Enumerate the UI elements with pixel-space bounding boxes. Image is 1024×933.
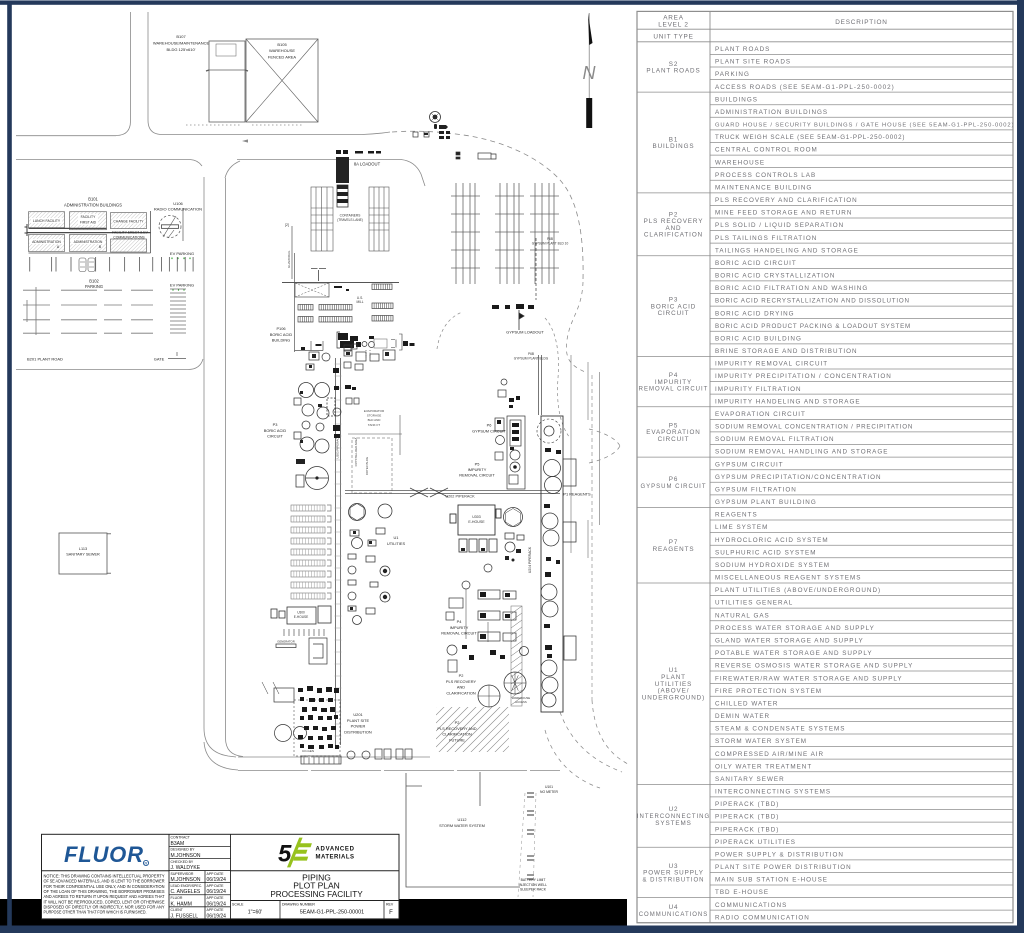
svg-text:BUILDINGS: BUILDINGS — [652, 143, 694, 150]
svg-text:ACCESS ROADS (SEE 5EAM-G1-PPL-: ACCESS ROADS (SEE 5EAM-G1-PPL-250-0002) — [715, 84, 895, 91]
svg-text:REV: REV — [386, 903, 394, 907]
svg-text:FACILITY: FACILITY — [81, 215, 96, 219]
svg-text:B101: B101 — [88, 197, 98, 202]
svg-text:L113: L113 — [79, 547, 87, 551]
svg-text:P4: P4 — [457, 619, 463, 624]
svg-text:POWER SUPPLY & DISTRIBUTION: POWER SUPPLY & DISTRIBUTION — [715, 851, 844, 858]
svg-text:BRINE STORAGE AND DISTRIBUTION: BRINE STORAGE AND DISTRIBUTION — [715, 348, 858, 355]
svg-text:SODIUM REMOVAL CONCENTRATION /: SODIUM REMOVAL CONCENTRATION / PRECIPITA… — [715, 424, 913, 431]
svg-text:& DISTRIBUTION: & DISTRIBUTION — [642, 877, 704, 883]
svg-text:WAREHOUSE/MAINTENANCE: WAREHOUSE/MAINTENANCE — [153, 40, 210, 45]
svg-text:B102: B102 — [89, 279, 99, 284]
svg-text:GYPSUM CIRCUIT: GYPSUM CIRCUIT — [472, 428, 506, 433]
svg-text:E-HOUSE: E-HOUSE — [468, 520, 485, 524]
svg-text:AREA: AREA — [663, 15, 684, 22]
svg-text:SUPERVISOR: SUPERVISOR — [171, 872, 194, 876]
svg-text:PIPERACK UTILITIES: PIPERACK UTILITIES — [715, 839, 796, 846]
svg-text:IMPURITY: IMPURITY — [468, 467, 487, 472]
svg-text:CHILLED WATER: CHILLED WATER — [715, 700, 778, 707]
svg-text:N: N — [583, 63, 597, 83]
svg-text:PIPERACK (TBD): PIPERACK (TBD) — [715, 801, 779, 808]
svg-text:INJECTION WELL: INJECTION WELL — [519, 883, 547, 887]
svg-text:BORIC ACID: BORIC ACID — [264, 428, 287, 433]
svg-text:CLIENT: CLIENT — [171, 908, 184, 912]
svg-text:IMPURITY FILTRATION: IMPURITY FILTRATION — [715, 386, 802, 393]
svg-text:FLUOR: FLUOR — [171, 896, 183, 900]
svg-text:U300: U300 — [297, 611, 305, 615]
svg-text:PLANT ROADS: PLANT ROADS — [646, 68, 700, 75]
svg-text:FIRE PROTECTION SYSTEM: FIRE PROTECTION SYSTEM — [715, 688, 822, 695]
svg-text:U1: U1 — [394, 535, 399, 540]
svg-text:CIRCUIT: CIRCUIT — [658, 310, 690, 317]
svg-text:MATERIALS: MATERIALS — [316, 855, 355, 861]
svg-text:EV PARKING: EV PARKING — [170, 283, 194, 288]
svg-text:PARKING: PARKING — [715, 71, 750, 78]
svg-text:STEAM & CONDENSATE SYSTEMS: STEAM & CONDENSATE SYSTEMS — [715, 726, 846, 733]
svg-text:PLS RECOVERY AND CLARIFICATION: PLS RECOVERY AND CLARIFICATION — [715, 197, 858, 204]
svg-text:FENCED AREA: FENCED AREA — [268, 54, 297, 59]
svg-text:U202 PIPERACK: U202 PIPERACK — [445, 495, 475, 499]
svg-text:FIRST AID: FIRST AID — [80, 221, 97, 225]
svg-text:NATURAL GAS: NATURAL GAS — [715, 612, 770, 619]
svg-text:IMPURITY: IMPURITY — [450, 625, 469, 630]
svg-text:BUILDING: BUILDING — [272, 338, 290, 343]
svg-text:AND: AND — [457, 685, 465, 690]
svg-text:P2: P2 — [455, 720, 460, 725]
svg-text:P3: P3 — [273, 422, 278, 427]
svg-text:P6B: P6B — [528, 352, 534, 356]
svg-text:COMMUNICATIONS: COMMUNICATIONS — [113, 236, 145, 240]
svg-text:8A LOADOUT: 8A LOADOUT — [354, 162, 381, 167]
svg-text:BORIC ACID BUILDING: BORIC ACID BUILDING — [715, 335, 802, 342]
svg-text:DESIGNED BY: DESIGNED BY — [171, 848, 196, 852]
svg-text:BATTERY LIMIT: BATTERY LIMIT — [521, 878, 546, 882]
svg-text:SULPHURIC ACID SYSTEM: SULPHURIC ACID SYSTEM — [715, 549, 816, 556]
svg-text:FUTURE: FUTURE — [449, 737, 465, 742]
svg-text:SODIUM HYDROXIDE SYSTEM: SODIUM HYDROXIDE SYSTEM — [715, 562, 830, 569]
svg-text:DRAWING NUMBER: DRAWING NUMBER — [282, 903, 315, 907]
svg-text:P5: P5 — [475, 462, 480, 467]
svg-text:PROCESS WATER STORAGE AND SUPP: PROCESS WATER STORAGE AND SUPPLY — [715, 625, 875, 632]
svg-text:U303: U303 — [472, 515, 481, 519]
svg-text:BORIC ACID PRODUCT PACKING & L: BORIC ACID PRODUCT PACKING & LOADOUT SYS… — [715, 323, 911, 330]
svg-text:WAREHOUSE: WAREHOUSE — [269, 48, 295, 53]
svg-text:BORIC ACID RECRYSTALLIZATION A: BORIC ACID RECRYSTALLIZATION AND DISSOLU… — [715, 298, 910, 305]
svg-text:SODIUM REMOVAL HANDLING AND ST: SODIUM REMOVAL HANDLING AND STORAGE — [715, 449, 888, 456]
svg-text:FACILITY ERECT & EV: FACILITY ERECT & EV — [112, 231, 148, 235]
svg-text:B201 PLANT ROAD: B201 PLANT ROAD — [27, 357, 63, 362]
svg-text:REMOVAL CIRCUIT: REMOVAL CIRCUIT — [441, 631, 477, 636]
svg-text:TBD E-HOUSE: TBD E-HOUSE — [715, 889, 769, 896]
svg-text:LEAD ENGR/SPEC.: LEAD ENGR/SPEC. — [171, 884, 203, 888]
svg-text:RADIO COMMUNICATION: RADIO COMMUNICATION — [154, 207, 202, 212]
svg-text:CLARIFICATION: CLARIFICATION — [446, 690, 476, 695]
svg-text:E-HOUSE: E-HOUSE — [294, 615, 309, 619]
svg-text:PLS TAILINGS FILTRATION: PLS TAILINGS FILTRATION — [715, 235, 817, 242]
svg-text:PLANT SITE: PLANT SITE — [347, 718, 370, 723]
svg-text:HYDROCLORIC ACID SYSTEM: HYDROCLORIC ACID SYSTEM — [715, 537, 829, 544]
svg-text:TAILINGS HANDELING AND STORAGE: TAILINGS HANDELING AND STORAGE — [715, 247, 859, 254]
svg-text:CLARIFICATION: CLARIFICATION — [644, 232, 703, 239]
svg-text:CHECKED BY: CHECKED BY — [171, 860, 194, 864]
svg-text:[2]: [2] — [285, 223, 289, 227]
svg-text:U204 PIPERACK: U204 PIPERACK — [528, 546, 532, 573]
svg-text:FIREWATER/RAW WATER STORAGE AN: FIREWATER/RAW WATER STORAGE AND SUPPLY — [715, 675, 903, 682]
svg-text:GYPSUM PLANT BLDG: GYPSUM PLANT BLDG — [514, 357, 549, 361]
svg-text:DESCRIPTION: DESCRIPTION — [835, 19, 887, 26]
svg-text:BORIC ACID CIRCUIT: BORIC ACID CIRCUIT — [715, 260, 797, 267]
svg-text:IMPURITY: IMPURITY — [655, 379, 692, 386]
svg-text:ADMINISTRATION BUILDINGS: ADMINISTRATION BUILDINGS — [715, 109, 828, 116]
svg-text:EVAPORATION CIRCUIT: EVAPORATION CIRCUIT — [715, 411, 806, 418]
svg-text:EVAPORATOR: EVAPORATOR — [364, 409, 385, 413]
svg-text:SANITARY SEWER: SANITARY SEWER — [66, 553, 100, 557]
svg-text:PLS RECOVERY AND: PLS RECOVERY AND — [437, 726, 476, 731]
svg-text:REMOVAL CIRCUIT: REMOVAL CIRCUIT — [639, 387, 709, 393]
svg-text:MILL: MILL — [356, 300, 363, 304]
svg-text:BUILDINGS: BUILDINGS — [715, 96, 758, 103]
svg-text:BORIC ACID: BORIC ACID — [270, 332, 293, 337]
svg-text:U203 PIPERACK: U203 PIPERACK — [336, 435, 340, 458]
svg-text:IMPURITY PRECIPITATION / CONCE: IMPURITY PRECIPITATION / CONCENTRATION — [715, 373, 892, 380]
svg-text:ADMINISTRATION BUILDINGS: ADMINISTRATION BUILDINGS — [64, 202, 122, 207]
svg-text:ADMINISTRATION: ADMINISTRATION — [32, 240, 61, 244]
svg-text:GUARDRAIL: GUARDRAIL — [287, 250, 291, 268]
svg-text:TRUCK WEIGH SCALE (SEE 5EAM-G1: TRUCK WEIGH SCALE (SEE 5EAM-G1-PPL-250-0… — [715, 134, 905, 141]
svg-text:UTILITIES: UTILITIES — [387, 541, 406, 546]
svg-text:CHANGE FACILITY: CHANGE FACILITY — [113, 220, 144, 224]
svg-text:GENERATOR: GENERATOR — [277, 640, 294, 644]
svg-text:COMMUNICATIONS: COMMUNICATIONS — [639, 912, 709, 918]
svg-text:INTERCONNECTING SYSTEMS: INTERCONNECTING SYSTEMS — [715, 789, 831, 796]
svg-text:B105: B105 — [277, 42, 287, 47]
svg-text:GYPSUM CIRCUIT: GYPSUM CIRCUIT — [715, 461, 784, 468]
svg-text:ADMINISTRATION: ADMINISTRATION — [74, 240, 103, 244]
svg-text:PLS SOLID / LIQUID SEPARATION: PLS SOLID / LIQUID SEPARATION — [715, 222, 844, 229]
svg-text:EV PARKING: EV PARKING — [170, 251, 194, 256]
svg-text:PARKING: PARKING — [85, 284, 103, 289]
svg-text:SANITARY SEWER: SANITARY SEWER — [715, 776, 785, 783]
svg-text:P6B: P6B — [547, 237, 553, 241]
svg-text:STORAGE: STORAGE — [367, 414, 382, 418]
svg-text:PROCESSING FACILITY: PROCESSING FACILITY — [270, 890, 363, 899]
svg-text:REAGENTS: REAGENTS — [715, 512, 758, 519]
svg-text:(TRAVELS LANE): (TRAVELS LANE) — [337, 218, 363, 222]
svg-text:APP DATE: APP DATE — [207, 872, 225, 876]
svg-text:APP DATE: APP DATE — [207, 908, 225, 912]
svg-text:P106: P106 — [276, 326, 285, 331]
svg-text:SCALE: SCALE — [232, 903, 244, 907]
svg-text:P2: P2 — [459, 673, 464, 678]
svg-text:DEMIN WATER: DEMIN WATER — [715, 713, 770, 720]
svg-text:PLANT SITE POWER DISTRIBUTION: PLANT SITE POWER DISTRIBUTION — [715, 864, 852, 871]
svg-text:ADVANCED: ADVANCED — [316, 846, 355, 852]
svg-text:UTILITIES GENERAL: UTILITIES GENERAL — [715, 600, 793, 607]
svg-text:PLS RECOVERY: PLS RECOVERY — [446, 679, 477, 684]
svg-text:UNIT TYPE: UNIT TYPE — [653, 34, 693, 41]
svg-text:LEVEL 2: LEVEL 2 — [658, 22, 689, 29]
svg-text:CLARIFICATION: CLARIFICATION — [442, 732, 472, 737]
svg-text:REVERSE OSMOSIS WATER STORAGE: REVERSE OSMOSIS WATER STORAGE AND SUPPLY — [715, 663, 913, 670]
svg-text:MINE FEED STORAGE AND RETURN: MINE FEED STORAGE AND RETURN — [715, 210, 852, 217]
svg-text:STORM WATER SYSTEM: STORM WATER SYSTEM — [715, 738, 807, 745]
svg-text:PLANT SITE ROADS: PLANT SITE ROADS — [715, 59, 791, 66]
svg-text:DISTRIBUTION: DISTRIBUTION — [344, 729, 372, 734]
svg-text:CO-GEN: CO-GEN — [302, 749, 314, 753]
svg-text:GYPSUM FILTRATION: GYPSUM FILTRATION — [715, 486, 797, 493]
svg-text:GLAND WATER STORAGE AND SUPPLY: GLAND WATER STORAGE AND SUPPLY — [715, 637, 864, 644]
svg-text:PIPERACK (TBD): PIPERACK (TBD) — [715, 826, 779, 833]
svg-text:BLD AND: BLD AND — [368, 418, 382, 422]
svg-text:CONTRACT: CONTRACT — [171, 836, 191, 840]
svg-text:UNDERGROUND): UNDERGROUND) — [642, 694, 705, 701]
svg-text:U201: U201 — [353, 712, 362, 717]
svg-text:IMPURITY REMOVAL CIRCUIT: IMPURITY REMOVAL CIRCUIT — [715, 361, 828, 368]
svg-text:06/19/24: 06/19/24 — [207, 913, 227, 919]
svg-text:BORIC ACID CRYSTALLIZATION: BORIC ACID CRYSTALLIZATION — [715, 273, 835, 280]
svg-text:REMOVAL CIRCUIT: REMOVAL CIRCUIT — [459, 473, 495, 478]
svg-text:POWER SUPPLY: POWER SUPPLY — [643, 870, 704, 877]
svg-text:U2: U2 — [669, 806, 679, 813]
svg-text:MISCELLANEOUS REAGENT SYSTEMS: MISCELLANEOUS REAGENT SYSTEMS — [715, 575, 861, 582]
svg-text:IMPURITY HANDELING AND STORAGE: IMPURITY HANDELING AND STORAGE — [715, 398, 861, 405]
svg-text:BORIC ACID FILTRATION AND WASH: BORIC ACID FILTRATION AND WASHING — [715, 285, 868, 292]
svg-text:APP DATE: APP DATE — [207, 896, 225, 900]
svg-text:POWER: POWER — [351, 724, 366, 729]
svg-text:GYPSUM CIRCUIT: GYPSUM CIRCUIT — [640, 484, 706, 490]
svg-text:APP DATE: APP DATE — [207, 884, 225, 888]
svg-text:WAREHOUSE: WAREHOUSE — [715, 159, 765, 166]
svg-text:RADIO COMMUNICATION: RADIO COMMUNICATION — [715, 914, 810, 921]
svg-text:U101: U101 — [545, 785, 553, 789]
svg-text:DRYER BLDG: DRYER BLDG — [365, 457, 369, 475]
svg-text:1"=60': 1"=60' — [248, 910, 263, 916]
svg-text:B107: B107 — [176, 34, 186, 39]
svg-text:PROCESS CONTROLS LAB: PROCESS CONTROLS LAB — [715, 172, 816, 179]
svg-text:BORIC ACID DRYING: BORIC ACID DRYING — [715, 310, 795, 317]
svg-text:CONTAINERS: CONTAINERS — [340, 214, 361, 218]
svg-text:U106: U106 — [173, 201, 183, 206]
svg-text:F: F — [389, 910, 393, 916]
svg-text:SYSTEMS: SYSTEMS — [655, 820, 691, 827]
svg-text:TANK FT: TANK FT — [368, 423, 380, 427]
svg-text:NO METER: NO METER — [540, 790, 558, 794]
svg-text:CENTRAL CONTROL ROOM: CENTRAL CONTROL ROOM — [715, 147, 818, 154]
svg-text:P1 REAGENTS: P1 REAGENTS — [563, 492, 591, 497]
svg-text:LIME SYSTEM: LIME SYSTEM — [715, 524, 768, 531]
svg-text:5EAM-G1-PPL-250-00001: 5EAM-G1-PPL-250-00001 — [300, 910, 365, 916]
svg-text:GUARD HOUSE / SECURITY BUILDIN: GUARD HOUSE / SECURITY BUILDINGS / GATE … — [715, 123, 1014, 129]
svg-text:LUNCH FACILITY: LUNCH FACILITY — [33, 219, 61, 223]
svg-text:P6: P6 — [487, 423, 492, 428]
svg-text:FLUOR: FLUOR — [64, 842, 144, 867]
svg-text:PURPOSE OTHER THAN THAT FOR WH: PURPOSE OTHER THAN THAT FOR WHICH IS FUR… — [44, 910, 147, 915]
svg-text:CRYSTALLIZER AREA: CRYSTALLIZER AREA — [354, 437, 358, 466]
svg-text:P6: P6 — [669, 476, 679, 483]
svg-text:GYPSUM PLANT BLD 10: GYPSUM PLANT BLD 10 — [532, 242, 569, 246]
svg-text:OILY WATER TREATMENT: OILY WATER TREATMENT — [715, 763, 812, 770]
svg-text:PLANT ROADS: PLANT ROADS — [715, 46, 770, 53]
svg-text:GYPSUM LOADOUT: GYPSUM LOADOUT — [506, 330, 544, 335]
svg-text:COMMUNICATIONS: COMMUNICATIONS — [715, 902, 787, 909]
svg-text:CIRCUIT: CIRCUIT — [267, 434, 283, 439]
svg-text:CIRCUIT: CIRCUIT — [658, 436, 690, 443]
svg-text:U4: U4 — [669, 904, 679, 911]
svg-text:BLDG 125'x610': BLDG 125'x610' — [167, 47, 196, 52]
svg-text:ACCESS: ACCESS — [515, 700, 527, 704]
svg-text:COMPRESSED AIR/MINE AIR: COMPRESSED AIR/MINE AIR — [715, 751, 824, 758]
svg-text:U112: U112 — [457, 817, 466, 822]
svg-text:PLANT UTILITIES (ABOVE/UNDERGR: PLANT UTILITIES (ABOVE/UNDERGROUND) — [715, 587, 881, 594]
svg-text:PIPERACK (TBD): PIPERACK (TBD) — [715, 814, 779, 821]
svg-text:MAIN SUB STATION E-HOUSE: MAIN SUB STATION E-HOUSE — [715, 877, 828, 884]
svg-text:J. FUSSELL: J. FUSSELL — [171, 913, 199, 919]
svg-text:SODIUM REMOVAL FILTRATION: SODIUM REMOVAL FILTRATION — [715, 436, 835, 443]
svg-text:STORM WATER SYSTEM: STORM WATER SYSTEM — [439, 823, 485, 828]
svg-text:REAGENTS: REAGENTS — [653, 546, 695, 553]
svg-text:GATE: GATE — [154, 357, 165, 362]
svg-text:POTABLE WATER STORAGE AND SUPP: POTABLE WATER STORAGE AND SUPPLY — [715, 650, 873, 657]
svg-text:GYPSUM PLANT BUILDING: GYPSUM PLANT BUILDING — [715, 499, 817, 506]
svg-text:MAINTENANCE BUILDING: MAINTENANCE BUILDING — [715, 184, 812, 191]
svg-text:GYPSUM PRECIPITATION/CONCENTRA: GYPSUM PRECIPITATION/CONCENTRATION — [715, 474, 882, 481]
